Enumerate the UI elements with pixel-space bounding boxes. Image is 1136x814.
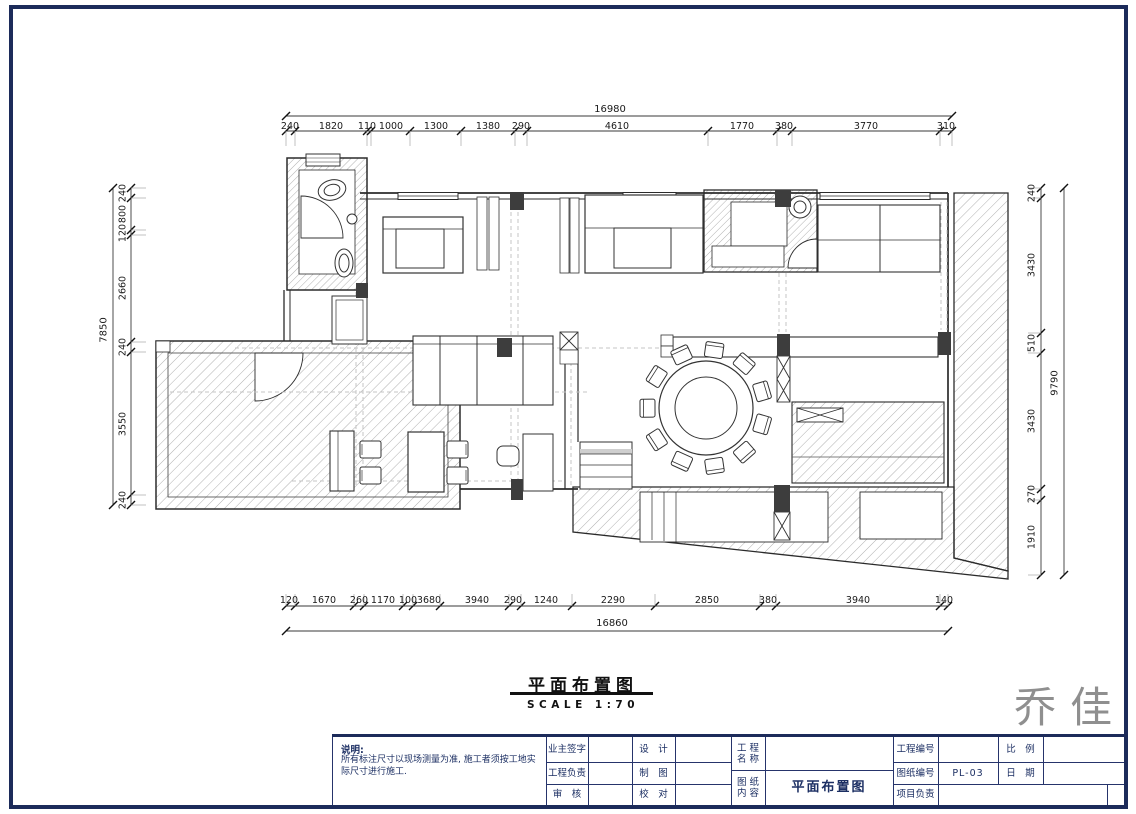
- dim-label: 110: [358, 121, 376, 132]
- sofa: [585, 195, 703, 273]
- dim-label: 1240: [534, 595, 558, 606]
- dim-label: 4610: [605, 121, 629, 132]
- dim-left-total: 7850: [99, 317, 110, 342]
- dim-label: 1170: [371, 595, 395, 606]
- side-panel: [570, 198, 579, 273]
- stairs-icon: [580, 442, 632, 489]
- dim-label: 140: [935, 595, 953, 606]
- dim-label: 3550: [118, 412, 129, 436]
- dim-label: 3430: [1027, 409, 1038, 433]
- company-logo: 乔佳: [1014, 674, 1126, 735]
- dim-label: 240: [118, 184, 129, 202]
- field-drawing-content: 图 纸 内 容: [731, 770, 765, 805]
- counter: [661, 335, 938, 357]
- round-table-chair: [671, 451, 694, 472]
- lounge-chair: [497, 446, 519, 466]
- dining-chair: [360, 441, 381, 458]
- field-design: 设 计: [632, 737, 675, 762]
- round-table-chair: [752, 381, 772, 403]
- dim-label: 2850: [695, 595, 719, 606]
- vent-window-icon: [306, 154, 340, 166]
- dim-label: 1000: [379, 121, 403, 132]
- field-drafting: 制 图: [632, 762, 675, 784]
- dim-label: 270: [1027, 485, 1038, 503]
- kitchen-cabinet: [332, 296, 367, 344]
- dim-label: 240: [281, 121, 299, 132]
- bench: [330, 431, 354, 491]
- dining-table: [408, 432, 444, 492]
- round-dining-table: [659, 361, 753, 455]
- field-owner-signature: 业主签字: [546, 737, 588, 762]
- field-scale: 比 例: [998, 737, 1043, 762]
- wardrobe: [818, 205, 940, 272]
- dining-chair: [360, 467, 381, 484]
- dim-bottom-total: 16860: [596, 618, 628, 629]
- field-drawing-no: 图纸编号: [893, 762, 938, 784]
- dim-label: 380: [775, 121, 793, 132]
- dim-label: 3430: [1027, 253, 1038, 277]
- note-label: 说明:: [341, 742, 364, 756]
- field-project-lead: 工程负责: [546, 762, 588, 784]
- dim-label: 3680: [417, 595, 441, 606]
- side-panel: [560, 198, 569, 273]
- kitchen-island: [413, 336, 553, 405]
- drawing-scale: SCALE 1:70: [527, 699, 639, 711]
- drawing-sheet: 16980 240 1820 110 1000 1300 1380 290 46…: [0, 0, 1136, 814]
- dim-label: 120: [280, 595, 298, 606]
- dim-label: 1770: [730, 121, 754, 132]
- dim-label: 240: [118, 338, 129, 356]
- dim-label: 290: [512, 121, 530, 132]
- field-project-no: 工程编号: [893, 737, 938, 762]
- dim-label: 2290: [601, 595, 625, 606]
- dim-right-total: 9790: [1050, 370, 1061, 395]
- round-table-chair: [705, 457, 725, 474]
- dining-chair: [447, 441, 468, 458]
- dim-label: 1670: [312, 595, 336, 606]
- note-text: 所有标注尺寸以现场测量为准, 施工者须按工地实际尺寸进行施工.: [341, 755, 541, 778]
- drawing-content-value: 平面布置图: [765, 770, 893, 805]
- dim-label: 240: [1027, 184, 1038, 202]
- dim-label: 1820: [319, 121, 343, 132]
- side-panel: [477, 197, 487, 270]
- dim-label: 1300: [424, 121, 448, 132]
- drawing-no-value: PL-03: [938, 762, 998, 784]
- field-review: 审 核: [546, 784, 588, 805]
- side-panel: [489, 197, 499, 270]
- dim-label: 1380: [476, 121, 500, 132]
- dim-label: 310: [937, 121, 955, 132]
- round-table-chair: [646, 365, 668, 388]
- sofa: [383, 217, 463, 273]
- dim-label: 120: [118, 224, 129, 242]
- field-project-manager: 项目负责: [893, 784, 938, 805]
- dim-label: 240: [118, 491, 129, 509]
- dim-label: 800: [118, 205, 129, 223]
- dim-label: 3770: [854, 121, 878, 132]
- dim-label: 380: [759, 595, 777, 606]
- dim-label: 3940: [846, 595, 870, 606]
- field-project-name: 工 程 名 称: [731, 737, 765, 770]
- dim-label: 2660: [118, 276, 129, 300]
- dim-label: 260: [350, 595, 368, 606]
- round-table-chair: [640, 399, 655, 417]
- round-table-chair: [704, 341, 724, 358]
- side-table: [523, 434, 553, 491]
- dining-chair: [447, 467, 468, 484]
- dim-label: 1910: [1027, 525, 1038, 549]
- field-date: 日 期: [998, 762, 1043, 784]
- field-proofread: 校 对: [632, 784, 675, 805]
- title-underline: [510, 692, 653, 695]
- dim-label: 100: [399, 595, 417, 606]
- round-table-chair: [752, 414, 771, 435]
- dim-label: 3940: [465, 595, 489, 606]
- sink-icon: [347, 214, 357, 224]
- dim-label: 510: [1027, 334, 1038, 352]
- right-terrace-hatch: [954, 193, 1008, 571]
- dim-top-total: 16980: [594, 104, 626, 115]
- dim-label: 290: [504, 595, 522, 606]
